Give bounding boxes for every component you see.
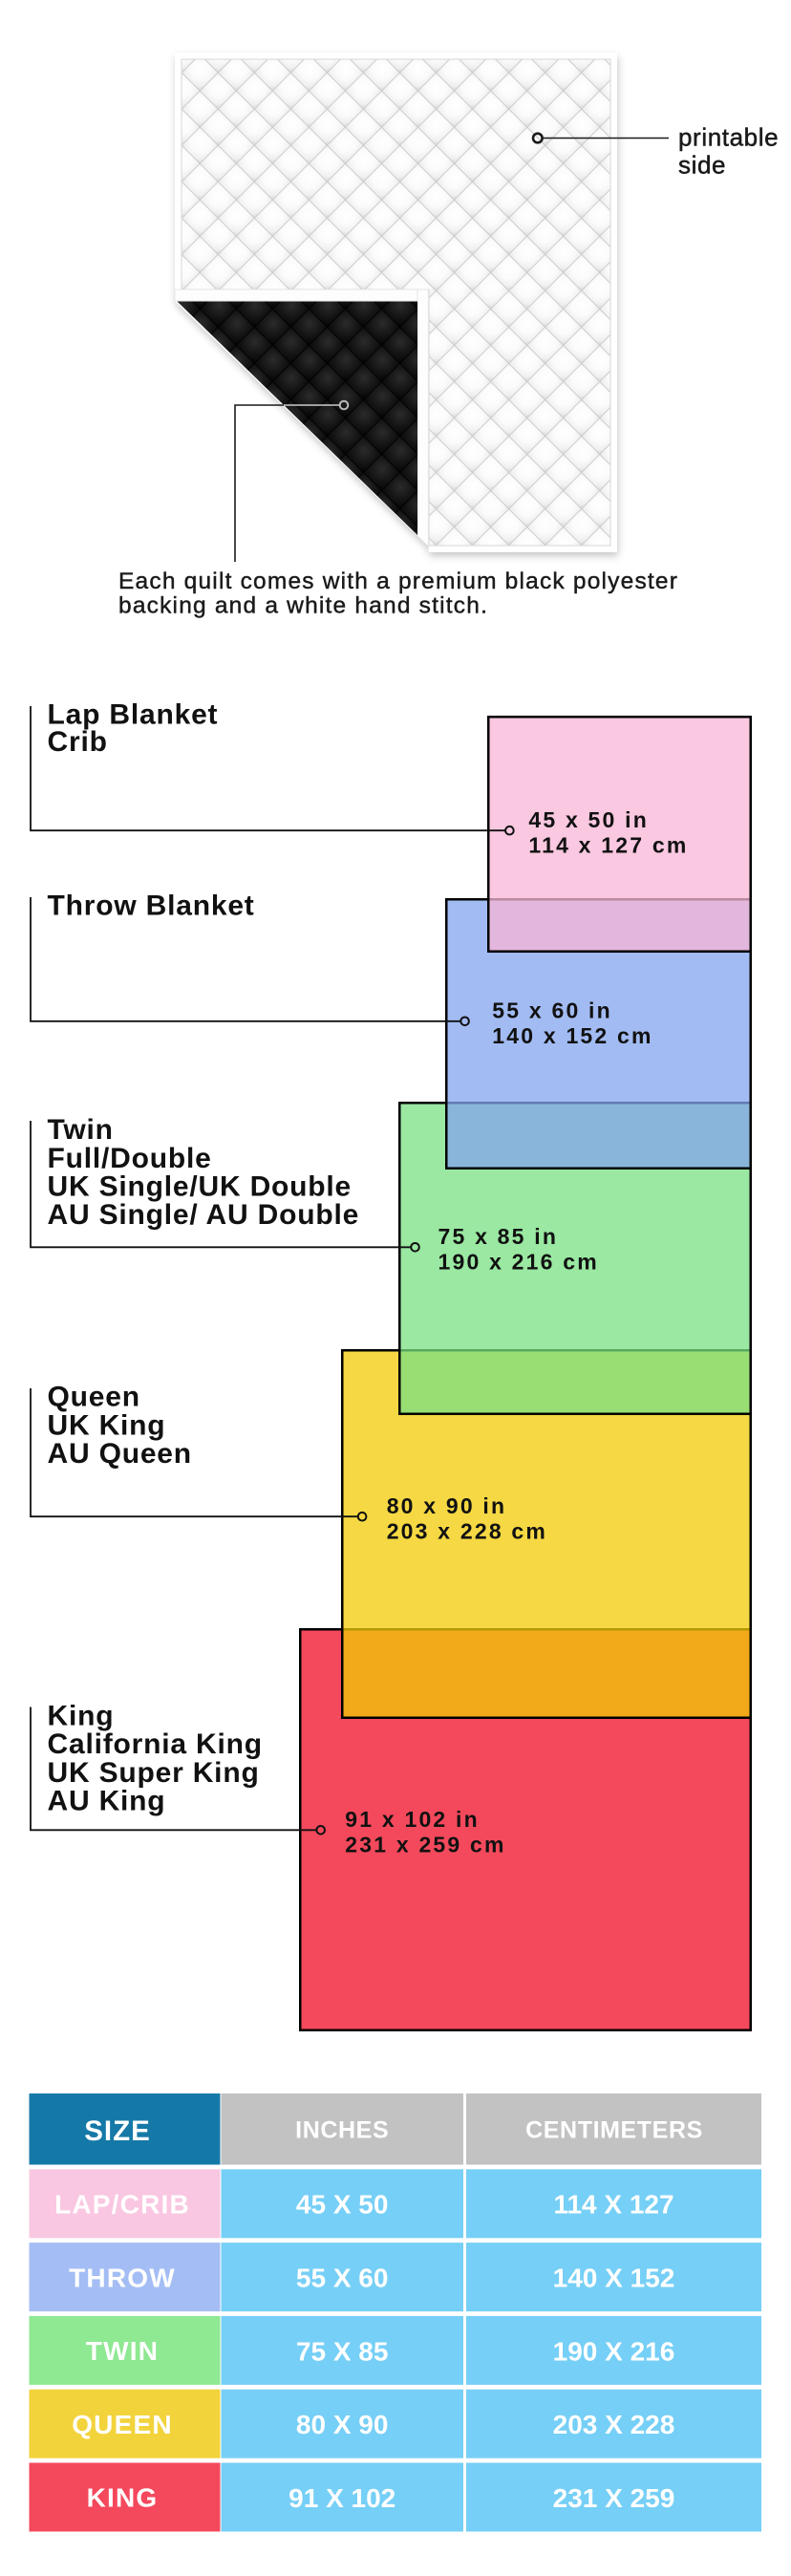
svg-text:231 X 259: 231 X 259: [553, 2483, 675, 2513]
svg-text:75 X 85: 75 X 85: [296, 2336, 389, 2366]
svg-text:backing and a white hand stitc: backing and a white hand stitch.: [118, 593, 488, 619]
svg-text:55 X 60: 55 X 60: [296, 2264, 389, 2293]
svg-text:140 X 152: 140 X 152: [553, 2264, 675, 2293]
svg-text:45 x 50 in: 45 x 50 in: [528, 807, 649, 832]
svg-text:80 x 90 in: 80 x 90 in: [387, 1493, 507, 1518]
svg-text:203 x 228 cm: 203 x 228 cm: [387, 1518, 547, 1543]
svg-text:UK Single/UK Double: UK Single/UK Double: [48, 1171, 353, 1203]
svg-text:SIZE: SIZE: [84, 2115, 151, 2147]
svg-text:AU King: AU King: [48, 1786, 166, 1817]
svg-text:231 x 259 cm: 231 x 259 cm: [345, 1832, 505, 1857]
svg-text:Twin: Twin: [48, 1114, 114, 1146]
svg-text:printable: printable: [678, 122, 779, 151]
svg-text:KING: KING: [87, 2483, 159, 2513]
svg-text:190 x 216 cm: 190 x 216 cm: [438, 1249, 599, 1274]
svg-text:UK King: UK King: [48, 1409, 166, 1441]
svg-text:UK Super King: UK Super King: [48, 1757, 260, 1789]
svg-text:California King: California King: [48, 1728, 263, 1760]
svg-text:75 x 85 in: 75 x 85 in: [438, 1224, 559, 1249]
svg-text:Full/Double: Full/Double: [48, 1143, 212, 1174]
svg-text:114 X 127: 114 X 127: [553, 2190, 673, 2220]
svg-text:Throw Blanket: Throw Blanket: [48, 891, 255, 922]
svg-text:80 X 90: 80 X 90: [296, 2410, 389, 2439]
svg-text:Each quilt comes with a premiu: Each quilt comes with a premium black po…: [118, 569, 678, 594]
svg-text:QUEEN: QUEEN: [72, 2410, 173, 2439]
svg-text:INCHES: INCHES: [295, 2116, 389, 2143]
svg-text:45 X 50: 45 X 50: [296, 2190, 389, 2220]
svg-text:55 x 60 in: 55 x 60 in: [492, 998, 612, 1023]
svg-text:91 x 102 in: 91 x 102 in: [345, 1807, 480, 1832]
svg-text:LAP/CRIB: LAP/CRIB: [54, 2190, 190, 2220]
svg-text:91 X 102: 91 X 102: [289, 2483, 395, 2513]
svg-text:AU Queen: AU Queen: [48, 1438, 192, 1470]
svg-text:THROW: THROW: [69, 2263, 176, 2292]
svg-text:Queen: Queen: [48, 1382, 140, 1413]
svg-text:King: King: [48, 1700, 115, 1731]
svg-text:140 x 152 cm: 140 x 152 cm: [492, 1023, 652, 1048]
svg-text:side: side: [678, 151, 726, 180]
svg-text:TWIN: TWIN: [86, 2336, 159, 2366]
svg-text:AU Single/ AU Double: AU Single/ AU Double: [48, 1199, 360, 1231]
svg-text:Crib: Crib: [48, 726, 108, 758]
svg-text:190 X 216: 190 X 216: [553, 2336, 675, 2366]
svg-text:114 x 127 cm: 114 x 127 cm: [528, 832, 688, 857]
svg-text:203 X 228: 203 X 228: [553, 2410, 675, 2439]
svg-text:CENTIMETERS: CENTIMETERS: [525, 2116, 703, 2143]
